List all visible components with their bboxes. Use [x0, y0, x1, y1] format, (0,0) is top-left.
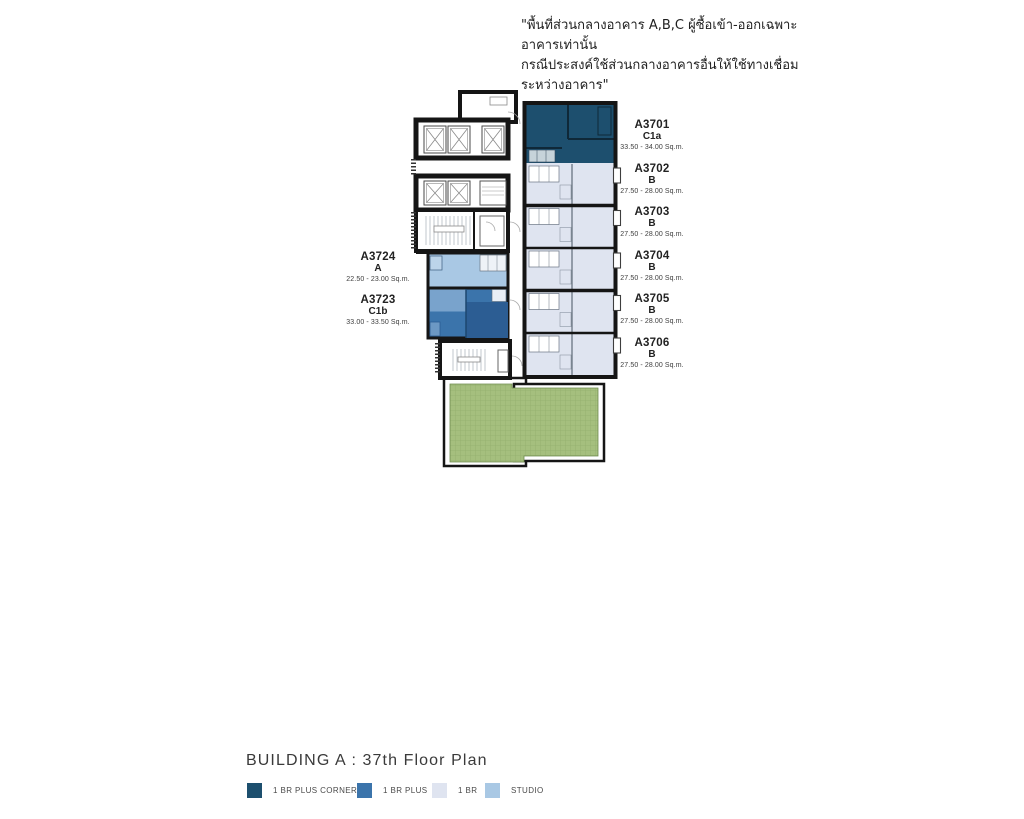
unit-a3723-region	[428, 288, 508, 338]
legend-swatch-1br	[432, 783, 447, 798]
unit-area: 27.50 - 28.00 Sq.m.	[604, 361, 700, 370]
terrace	[444, 378, 604, 466]
unit-type: B	[604, 349, 700, 360]
legend-swatch-1br-plus-corner	[247, 783, 262, 798]
unit-area: 27.50 - 28.00 Sq.m.	[604, 187, 700, 196]
unit-label-a3705: A3705 B 27.50 - 28.00 Sq.m.	[604, 293, 700, 326]
legend-label: 1 BR PLUS	[383, 786, 428, 795]
unit-type: B	[604, 262, 700, 273]
unit-area: 27.50 - 28.00 Sq.m.	[604, 274, 700, 283]
unit-label-a3703: A3703 B 27.50 - 28.00 Sq.m.	[604, 206, 700, 239]
unit-id: A3701	[604, 119, 700, 131]
core	[414, 92, 521, 254]
unit-area: 22.50 - 23.00 Sq.m.	[333, 275, 423, 284]
unit-type: A	[333, 263, 423, 274]
unit-id: A3702	[604, 163, 700, 175]
unit-label-a3702: A3702 B 27.50 - 28.00 Sq.m.	[604, 163, 700, 196]
unit-label-a3706: A3706 B 27.50 - 28.00 Sq.m.	[604, 337, 700, 370]
unit-type: C1a	[604, 131, 700, 142]
unit-a3724-region	[428, 253, 508, 288]
unit-type: B	[604, 305, 700, 316]
unit-area: 33.00 - 33.50 Sq.m.	[333, 318, 423, 327]
unit-type: C1b	[333, 306, 423, 317]
legend-item-studio: STUDIO	[485, 783, 544, 798]
page-title: BUILDING A : 37th Floor Plan	[246, 752, 488, 770]
unit-id: A3704	[604, 250, 700, 262]
legend-item-1br: 1 BR	[432, 783, 477, 798]
elevator-icons-bank1	[424, 126, 504, 153]
legend-swatch-1br-plus	[357, 783, 372, 798]
legend-label: 1 BR PLUS CORNER	[273, 786, 357, 795]
unit-area: 27.50 - 28.00 Sq.m.	[604, 317, 700, 326]
floor-plan-page: { "disclaimer": { "line1": "\"พื้นที่ส่ว…	[0, 0, 1024, 819]
unit-id: A3706	[604, 337, 700, 349]
unit-id: A3703	[604, 206, 700, 218]
legend-label: 1 BR	[458, 786, 477, 795]
legend-item-1br-plus: 1 BR PLUS	[357, 783, 428, 798]
unit-area: 27.50 - 28.00 Sq.m.	[604, 230, 700, 239]
unit-type: B	[604, 175, 700, 186]
unit-id: A3705	[604, 293, 700, 305]
unit-label-a3723: A3723 C1b 33.00 - 33.50 Sq.m.	[333, 294, 423, 327]
unit-label-a3701: A3701 C1a 33.50 - 34.00 Sq.m.	[604, 119, 700, 152]
unit-label-a3704: A3704 B 27.50 - 28.00 Sq.m.	[604, 250, 700, 283]
floor-plan-drawing	[0, 0, 1024, 819]
unit-type: B	[604, 218, 700, 229]
lower-stair	[438, 341, 511, 378]
unit-area: 33.50 - 34.00 Sq.m.	[604, 143, 700, 152]
unit-id: A3723	[333, 294, 423, 306]
legend-label: STUDIO	[511, 786, 544, 795]
unit-id: A3724	[333, 251, 423, 263]
legend-item-1br-plus-corner: 1 BR PLUS CORNER	[247, 783, 357, 798]
legend-swatch-studio	[485, 783, 500, 798]
unit-label-a3724: A3724 A 22.50 - 23.00 Sq.m.	[333, 251, 423, 284]
